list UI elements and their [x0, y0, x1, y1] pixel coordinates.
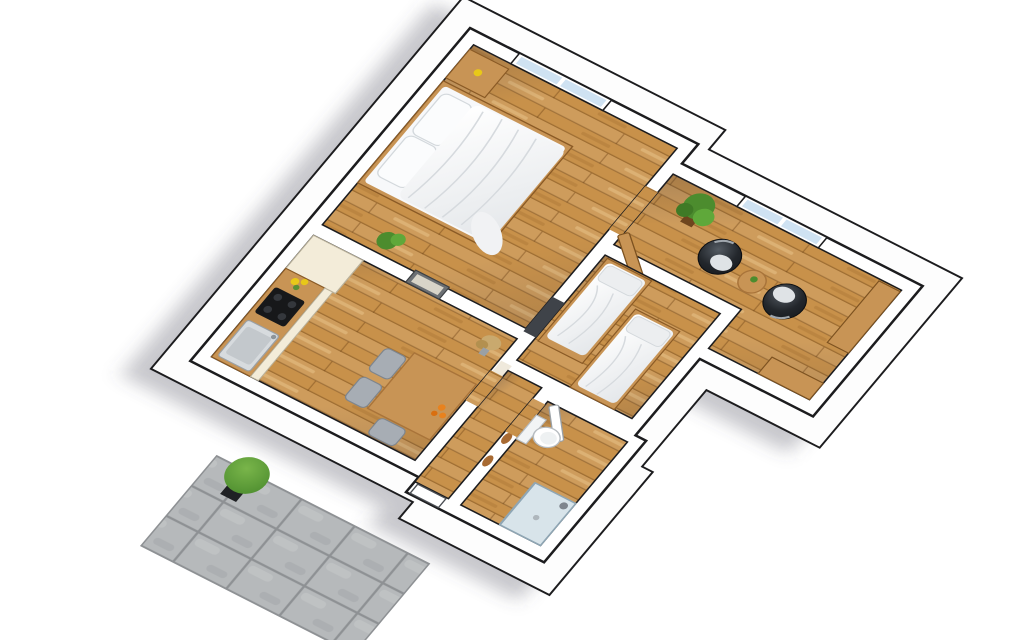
floor-plan-svg [0, 0, 1024, 640]
floor-plan-stage [0, 0, 1024, 640]
plan-projection-group [26, 0, 978, 640]
